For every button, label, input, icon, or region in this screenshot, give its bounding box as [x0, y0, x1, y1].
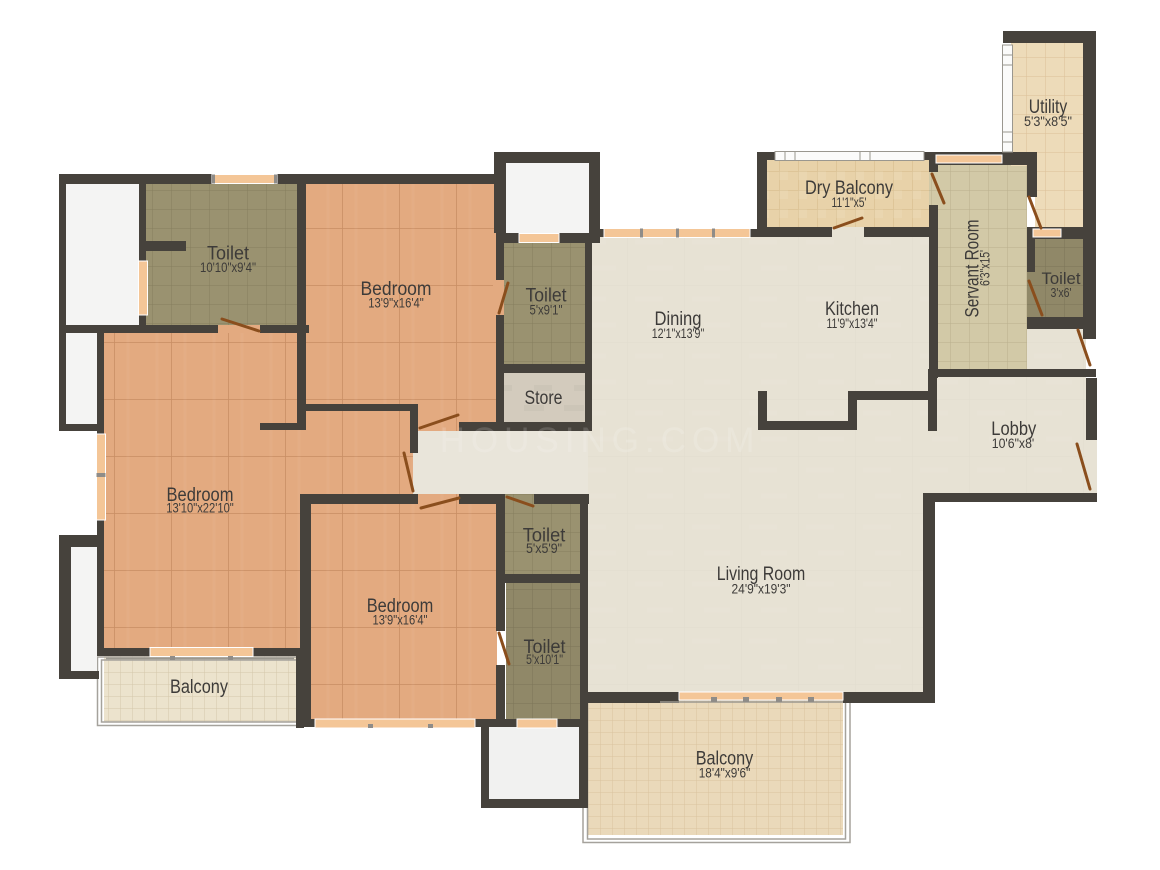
svg-text:Balcony: Balcony	[170, 677, 228, 698]
svg-text:12'1"x13'9": 12'1"x13'9"	[652, 326, 705, 341]
svg-text:6'3"x15': 6'3"x15'	[978, 250, 993, 286]
svg-text:5'x10'1": 5'x10'1"	[526, 652, 563, 667]
svg-text:24'9"x19'3": 24'9"x19'3"	[732, 582, 791, 597]
svg-text:10'10"x9'4": 10'10"x9'4"	[200, 260, 256, 275]
svg-text:HOUSING.COM: HOUSING.COM	[440, 421, 761, 460]
svg-text:11'1"x5': 11'1"x5'	[832, 195, 867, 210]
svg-text:11'9"x13'4": 11'9"x13'4"	[827, 316, 878, 331]
svg-text:13'9"x16'4": 13'9"x16'4"	[368, 296, 424, 311]
svg-text:Store: Store	[525, 388, 563, 409]
svg-text:13'10"x22'10": 13'10"x22'10"	[166, 501, 234, 516]
svg-text:5'3"x8'5": 5'3"x8'5"	[1024, 114, 1072, 129]
svg-text:5'x9'1": 5'x9'1"	[530, 303, 563, 318]
svg-text:3'x6': 3'x6'	[1051, 286, 1072, 300]
svg-text:5'x5'9": 5'x5'9"	[526, 541, 562, 556]
svg-text:18'4"x9'6": 18'4"x9'6"	[699, 766, 751, 781]
svg-text:13'9"x16'4": 13'9"x16'4"	[373, 613, 428, 628]
svg-text:10'6"x8': 10'6"x8'	[992, 436, 1035, 451]
